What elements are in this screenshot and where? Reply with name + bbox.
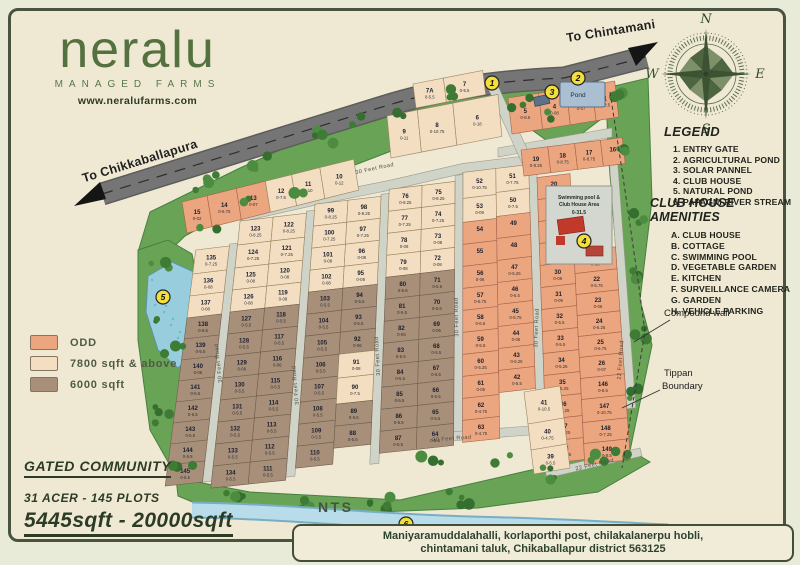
tree <box>240 493 246 499</box>
legend-entry: G. GARDEN <box>650 295 800 306</box>
tree <box>490 458 499 467</box>
color-swatch-label: ODD <box>70 337 97 349</box>
plot-area: 0-8.5 <box>598 388 608 393</box>
plot-area: 0-6.5 <box>475 321 485 326</box>
plot-area: 0-5.5 <box>270 385 280 390</box>
pond-label: Pond <box>570 92 586 99</box>
pond-texture-dot <box>154 304 156 306</box>
plot-area: 0-08 <box>352 366 361 371</box>
plot-area: 0-06 <box>194 370 203 375</box>
plot-area: 0-6.75 <box>218 209 231 214</box>
brand-website: www.neralufarms.com <box>30 95 245 107</box>
plot-area: 0-6.25 <box>510 359 523 364</box>
tree <box>507 452 513 458</box>
tree <box>611 447 621 457</box>
tree <box>154 316 160 322</box>
plot-area: 0-5.5 <box>317 347 327 352</box>
plot-area: 0-08 <box>281 275 290 280</box>
plot-area: 0-5.5 <box>313 413 323 418</box>
plot-area: 0-08 <box>550 110 559 115</box>
clubhouse-line1: Swimming pool & <box>558 195 600 201</box>
plot-area: 0-5.5 <box>311 435 321 440</box>
tree <box>640 215 649 224</box>
plot-area: 0-12 <box>335 180 344 185</box>
plot-area: 0-8.25 <box>399 200 412 205</box>
tree <box>203 177 214 188</box>
plot-area: 0-10.75 <box>430 129 445 134</box>
plot-area: 0-7.25 <box>247 256 260 261</box>
tree <box>392 108 402 118</box>
marker-5-number: 5 <box>161 292 166 302</box>
plot-number: 48 <box>511 243 518 249</box>
plot-area: 0-5.5 <box>349 415 359 420</box>
plot-area: 0-5.5 <box>320 303 330 308</box>
tree <box>613 89 624 100</box>
marker-2-number: 2 <box>575 73 581 83</box>
pond-texture-dot <box>177 337 179 339</box>
plot-area: 0-5.5 <box>393 442 403 447</box>
tree <box>544 109 551 116</box>
tree <box>626 387 635 396</box>
color-swatch <box>30 377 58 392</box>
plot-area: 0-06 <box>237 367 246 372</box>
plot-area: 0-8.75 <box>583 156 596 161</box>
plot-area: 0-07 <box>597 367 606 372</box>
plot-number: 55 <box>477 249 484 255</box>
plot-area: 0-8.25 <box>249 233 262 238</box>
tree <box>627 395 633 401</box>
plot-area: 0-08 <box>204 285 213 290</box>
tree <box>312 132 318 138</box>
plot-area: 0-5.5 <box>310 457 320 462</box>
legend-entry: B. COTTAGE <box>650 241 800 252</box>
color-key-row: ODD <box>30 334 177 348</box>
tree <box>179 343 186 350</box>
community-title: GATED COMMUNITY <box>24 458 171 478</box>
tree <box>253 167 258 172</box>
plot-area: 0-5.5 <box>185 433 195 438</box>
plot-area: 0-5.5 <box>431 394 441 399</box>
plot-area: 0-5.5 <box>239 345 249 350</box>
tree <box>438 459 444 465</box>
compass-w: W <box>645 67 660 82</box>
plot-area: 0-06 <box>476 277 485 282</box>
plot-area: 0-5.5 <box>396 354 406 359</box>
tree <box>196 224 204 232</box>
road-name-label: 30 Feet Road <box>454 297 461 336</box>
tree <box>240 198 249 207</box>
plot-area: 0-02 <box>193 216 202 221</box>
plot-area: 0-7.5 <box>350 391 360 396</box>
tree <box>152 419 159 426</box>
plot-area: 0-05 <box>476 387 485 392</box>
plot-area: 0-5.5 <box>241 323 251 328</box>
pond-texture-dot <box>170 324 172 326</box>
plot-area: 0-7.25 <box>432 218 445 223</box>
plot-area: 0-5.5 <box>460 88 470 93</box>
tree <box>463 498 475 510</box>
plot-area: 0-6.75 <box>594 346 607 351</box>
plot-area: 0-8.75 <box>557 160 570 165</box>
plot-area: 0-06 <box>397 332 406 337</box>
tree <box>385 492 396 503</box>
plot-area: 0-5.5 <box>476 343 486 348</box>
tree <box>155 408 163 416</box>
amenities-title: CLUB HOUSE AMENITIES <box>650 196 800 224</box>
plot-area: 0-8.25 <box>283 229 296 234</box>
legend-entry: 3. SOLAR PANNEL <box>664 165 800 176</box>
legend-entry: E. KITCHEN <box>650 273 800 284</box>
plot-area: 0-10.5 <box>538 407 551 412</box>
tree <box>629 267 636 274</box>
plot-area: 0-5.5 <box>431 350 441 355</box>
tree <box>263 151 272 160</box>
address-line2: chintamani taluk, Chikaballapur district… <box>294 543 792 556</box>
pond-texture-dot <box>165 305 167 307</box>
pond-texture-dot <box>179 331 181 333</box>
plot-area: 0-5.5 <box>512 381 522 386</box>
tree <box>520 102 527 109</box>
community-size-range: 5445sqft - 20000sqft <box>24 509 233 537</box>
marker-3-number: 3 <box>550 87 555 97</box>
plot-area: 0-5.5 <box>556 342 566 347</box>
plot-area: 0-11 <box>400 136 409 141</box>
plot-area: 0-5.5 <box>355 299 365 304</box>
tree <box>525 94 533 102</box>
plot-area: 0-6.25 <box>593 325 606 330</box>
compass-e: E <box>754 67 765 82</box>
amenities-panel: CLUB HOUSE AMENITIES A. CLUB HOUSEB. COT… <box>650 196 800 316</box>
plot-area: 0-4.75 <box>475 409 488 414</box>
plot-area: 0-06 <box>273 363 282 368</box>
plot-area: 0-18 <box>473 121 482 126</box>
nts-label: NTS <box>318 499 354 515</box>
amenities-items: A. CLUB HOUSEB. COTTAGEC. SWIMMING POOLD… <box>650 230 800 316</box>
plot-area: 0-7.25 <box>600 432 613 437</box>
tree <box>164 409 174 419</box>
plot-area: 0-5.5 <box>510 293 520 298</box>
site-map-poster: 1350-7.251360-081370-081380-5.51390-5.51… <box>0 0 800 565</box>
legend-entry: C. SWIMMING POOL <box>650 252 800 263</box>
road-name-label: 30 Feet Road <box>355 162 395 176</box>
community-summary: GATED COMMUNITY 31 ACER - 145 PLOTS 5445… <box>24 458 233 537</box>
plot-area: 0-08 <box>244 301 253 306</box>
plot-area: 0-06 <box>432 328 441 333</box>
plot-area: 0-06 <box>594 304 603 309</box>
plot-area: 0-5.25 <box>508 271 521 276</box>
tree <box>383 501 392 510</box>
plot-area: 0-5.5 <box>395 398 405 403</box>
plot-area: 0-5.25 <box>475 365 488 370</box>
color-swatch-label: 7800 sqft & above <box>70 358 177 370</box>
color-swatch <box>30 335 58 350</box>
tippan-boundary-label-2: Boundary <box>662 381 703 392</box>
plot-area: 0-5.75 <box>509 315 522 320</box>
address-box: Maniyaramuddalahalli, korlaporthi post, … <box>292 524 794 562</box>
plot-area: 0-5.5 <box>555 320 565 325</box>
tree <box>212 171 220 179</box>
compass-graphic <box>661 29 751 119</box>
plot-area: 0-5.5 <box>432 306 442 311</box>
tree <box>630 329 641 340</box>
plot-area: 0-5.5 <box>230 433 240 438</box>
plot-area: 0-5.5 <box>274 341 284 346</box>
plot-area: 0-5.5 <box>316 369 326 374</box>
plot-area: 0-5.5 <box>354 321 364 326</box>
tree <box>446 84 456 94</box>
tree <box>212 224 221 233</box>
tree <box>446 488 453 495</box>
color-swatch-label: 6000 sqft <box>70 379 125 391</box>
plot-area: 0-06 <box>512 337 521 342</box>
plot-area: 0-08 <box>357 255 366 260</box>
pond-texture-dot <box>151 279 153 281</box>
plot-area: 0-08 <box>433 262 442 267</box>
clubhouse-annex <box>556 236 565 245</box>
legend-entry: 2. AGRICULTURAL POND <box>664 155 800 166</box>
plot-area: 0-5.5 <box>267 429 277 434</box>
plot-area: 0-08 <box>279 297 288 302</box>
plot-area: 0-5.5 <box>431 416 441 421</box>
plot-area: 0-7.25 <box>399 222 412 227</box>
plot-area: 0-5.5 <box>432 284 442 289</box>
tree <box>547 465 553 471</box>
plot-area: 0-5.5 <box>319 325 329 330</box>
plot-area: 0-5.75 <box>591 283 604 288</box>
plot-area: 0-08 <box>553 276 562 281</box>
plot-area: 0-8.25 <box>358 211 371 216</box>
tree <box>367 499 373 505</box>
tree <box>148 261 153 266</box>
tree <box>288 187 300 199</box>
compass-rose: N E S W <box>645 12 767 134</box>
pond-texture-dot <box>172 318 174 320</box>
plot-area: 0-8.25 <box>530 163 543 168</box>
tree <box>629 208 640 219</box>
legend-entry: 4. CLUB HOUSE <box>664 176 800 187</box>
pond-texture-dot <box>163 311 165 313</box>
plot-area: 0-5.5 <box>395 376 405 381</box>
color-key-row: 7800 sqft & above <box>30 355 177 369</box>
tree <box>621 147 630 156</box>
arrow-to-chikkaballapura <box>74 182 106 206</box>
legend-title: LEGEND <box>664 124 800 139</box>
legend-entry: 1. ENTRY GATE <box>664 144 800 155</box>
address-line1: Maniyaramuddalahalli, korlaporthi post, … <box>294 530 792 543</box>
plot-area: 0-5.5 <box>263 473 273 478</box>
plot-area: 0-7.5 <box>276 195 286 200</box>
clubhouse-area: 0-31.5 <box>572 210 586 216</box>
tree <box>459 495 465 501</box>
plot-area: 0-08 <box>324 259 333 264</box>
tree <box>192 187 198 193</box>
plot-area: 0-5.5 <box>276 319 286 324</box>
plot-area: 0-7.75 <box>506 180 519 185</box>
plot-area: 0-8.25 <box>432 196 445 201</box>
tree <box>507 103 516 112</box>
plot-area: 0-4.75 <box>475 431 488 436</box>
plot-area: 0-08 <box>322 281 331 286</box>
plot-area: 0-5.5 <box>235 389 245 394</box>
plot-area: 0-5.25 <box>555 364 568 369</box>
plot-area: 0-5.5 <box>546 461 556 466</box>
plot-area: 0-09 <box>475 210 484 215</box>
brand-tagline: MANAGED FARMS <box>30 79 245 90</box>
plot-area: 0-5.5 <box>196 349 206 354</box>
plot-area: 0-5.5 <box>265 451 275 456</box>
plot-color-key: ODD7800 sqft & above6000 sqft <box>30 334 177 397</box>
tree <box>317 130 328 141</box>
plot-area: 0-7.25 <box>323 237 336 242</box>
plot-area: 0-7.25 <box>205 262 218 267</box>
plot-area: 0-5.5 <box>190 391 200 396</box>
plot-area: 0-08 <box>356 277 365 282</box>
plot-area: 0-5.5 <box>348 437 358 442</box>
brand-name: neralu <box>30 24 245 77</box>
plot-area: 0-5.5 <box>188 412 198 417</box>
plot-area: 0-5.5 <box>425 95 435 100</box>
legend-entry: H. VEHICLE PARKING <box>650 306 800 317</box>
tree <box>349 121 356 128</box>
tree <box>328 138 339 149</box>
tree <box>631 273 642 284</box>
plot-area: 0-5.5 <box>198 328 208 333</box>
community-stats: 31 ACER - 145 PLOTS <box>24 491 233 505</box>
plot-number: 16 <box>609 147 616 153</box>
clubhouse-line2: Club House Area <box>559 202 599 208</box>
plot-area: 0-4.75 <box>541 436 554 441</box>
tree <box>540 464 547 471</box>
marker-1-number: 1 <box>490 78 495 88</box>
plot-area: 0-5.75 <box>474 299 487 304</box>
plot-area: 0-5.5 <box>269 407 279 412</box>
plot-area: 0-8.5 <box>520 115 530 120</box>
plot-area: 0-5.5 <box>431 372 441 377</box>
legend-entry: F. SURVEILLANCE CAMERA <box>650 284 800 295</box>
compass-n: N <box>699 12 712 27</box>
plot-area: 0-07 <box>249 202 258 207</box>
legend-entry: D. VEGETABLE GARDEN <box>650 262 800 273</box>
tree <box>300 496 309 505</box>
tree <box>299 188 308 197</box>
plot-area: 0-5.5 <box>394 420 404 425</box>
plot-area: 0-5.5 <box>314 391 324 396</box>
plot-area: 0-10.75 <box>597 410 612 415</box>
plot-area: 0-08 <box>400 244 409 249</box>
tree <box>545 475 555 485</box>
legend-entry: A. CLUB HOUSE <box>650 230 800 241</box>
plot-area: 0-5.5 <box>398 288 408 293</box>
tree <box>415 451 427 463</box>
plot-area: 0-08 <box>434 240 443 245</box>
plot-area: 0-7.5 <box>508 204 518 209</box>
plot-area: 0-08 <box>201 307 210 312</box>
plot-area: 0-06 <box>353 343 362 348</box>
color-key-row: 6000 sqft <box>30 376 177 390</box>
brand-logo: neralu MANAGED FARMS www.neralufarms.com <box>30 24 245 107</box>
plot-area: 0-7.25 <box>357 233 370 238</box>
plot-area: 0-7.25 <box>281 252 294 257</box>
color-swatch <box>30 356 58 371</box>
marker-4-number: 4 <box>581 236 587 246</box>
tree <box>357 112 365 120</box>
tippan-boundary-label-1: Tippan <box>664 368 693 379</box>
tree <box>428 455 439 466</box>
plot-area: 0-5.5 <box>397 310 407 315</box>
plot-area: 0-5.5 <box>232 411 242 416</box>
tree <box>547 115 555 123</box>
plot-area: 0-08 <box>399 266 408 271</box>
plot-number: 54 <box>476 227 483 233</box>
cottage-building <box>586 246 603 256</box>
plot-area: 0-8.25 <box>325 215 338 220</box>
plot-area: 0-09 <box>554 298 563 303</box>
plot-area: 0-08 <box>246 279 255 284</box>
tree <box>160 257 171 268</box>
clubhouse-building <box>557 216 585 234</box>
plot-number: 49 <box>510 221 517 227</box>
plot-area: 0-10.75 <box>472 185 487 190</box>
